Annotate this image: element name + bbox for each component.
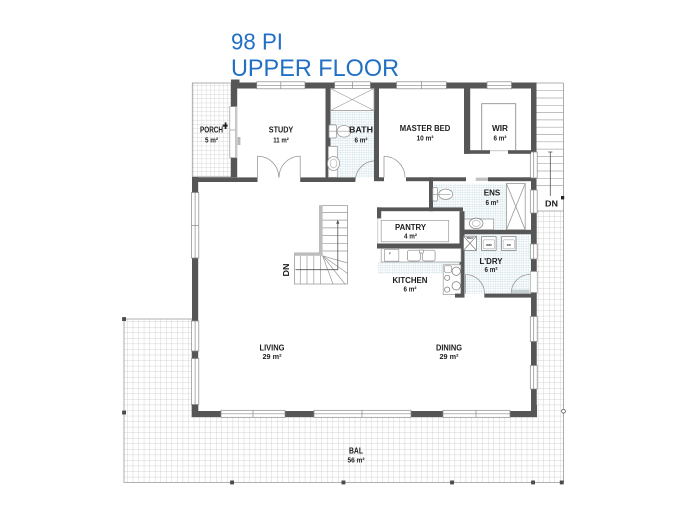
svg-text:5 m²: 5 m² [205, 136, 219, 144]
svg-text:PORCH: PORCH [200, 125, 223, 135]
svg-text:6 m²: 6 m² [355, 136, 369, 144]
svg-text:6 m²: 6 m² [485, 266, 499, 274]
svg-text:DN: DN [281, 264, 291, 277]
svg-text:6 m²: 6 m² [486, 199, 500, 207]
svg-text:98 PI: 98 PI [231, 29, 283, 55]
svg-text:DINING: DINING [436, 343, 462, 353]
svg-text:PANTRY: PANTRY [395, 222, 426, 232]
svg-text:4 m²: 4 m² [404, 233, 418, 241]
svg-text:56 m²: 56 m² [348, 456, 366, 464]
svg-text:STUDY: STUDY [269, 125, 294, 135]
svg-text:WIR: WIR [492, 123, 509, 133]
svg-text:ENS: ENS [484, 188, 501, 198]
svg-text:LIVING: LIVING [260, 343, 285, 353]
svg-text:BAL: BAL [349, 446, 364, 456]
svg-text:6 m²: 6 m² [494, 134, 508, 142]
svg-text:BATH: BATH [349, 125, 373, 135]
svg-text:6 m²: 6 m² [404, 285, 418, 293]
svg-text:TRAY: TRAY [466, 236, 473, 240]
svg-text:L'DRY: L'DRY [480, 256, 503, 266]
svg-text:29 m²: 29 m² [440, 353, 460, 361]
svg-text:KITCHEN: KITCHEN [393, 275, 428, 285]
svg-text:29 m²: 29 m² [263, 353, 283, 361]
svg-text:10 m²: 10 m² [417, 134, 435, 142]
svg-text:11 m²: 11 m² [273, 136, 289, 144]
svg-text:DN: DN [545, 199, 558, 209]
svg-text:MASTER BED: MASTER BED [400, 123, 451, 133]
svg-text:W/M: W/M [486, 243, 492, 247]
svg-text:UPPER FLOOR: UPPER FLOOR [231, 55, 399, 82]
